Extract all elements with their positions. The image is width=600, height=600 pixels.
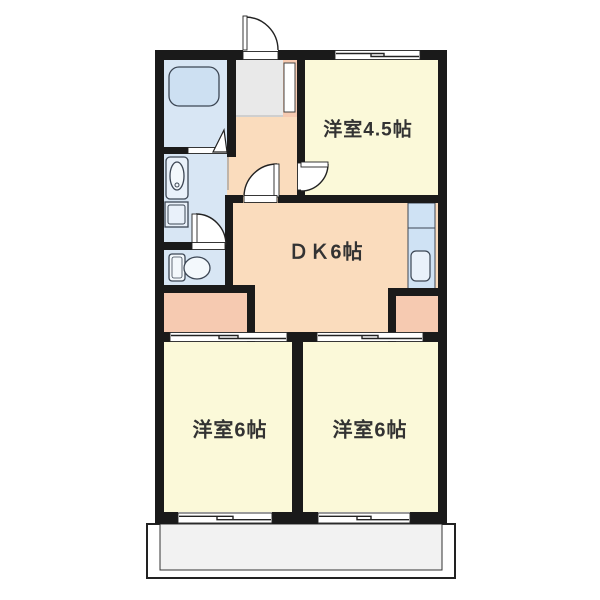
closet-right-floor (396, 296, 438, 332)
balcony (147, 524, 455, 578)
washbasin-icon (166, 157, 188, 199)
washing-machine-icon (165, 202, 188, 227)
closet-left-floor (164, 293, 247, 332)
sliding-door-right (317, 333, 423, 342)
bathtub-icon (169, 67, 219, 106)
kitchen-sink-icon (411, 251, 430, 281)
entrance-door (243, 16, 278, 60)
room-label-western-45: 洋室4.5帖 (323, 115, 412, 142)
window-bottom-left (178, 513, 272, 523)
floor-plan-drawing (0, 0, 600, 600)
kitchen-counter (408, 203, 435, 290)
shoe-cabinet-icon (284, 63, 295, 112)
room-label-dk: ＤＫ6帖 (288, 236, 363, 265)
sliding-door-left (170, 333, 287, 342)
window-top (335, 51, 420, 60)
room-label-western-6-right: 洋室6帖 (332, 414, 407, 443)
room-label-western-6-left: 洋室6帖 (192, 414, 267, 443)
window-bottom-right (318, 513, 410, 523)
floor-plan: 洋室4.5帖 ＤＫ6帖 洋室6帖 洋室6帖 (0, 0, 600, 600)
entrance-genkan-floor (236, 60, 284, 117)
